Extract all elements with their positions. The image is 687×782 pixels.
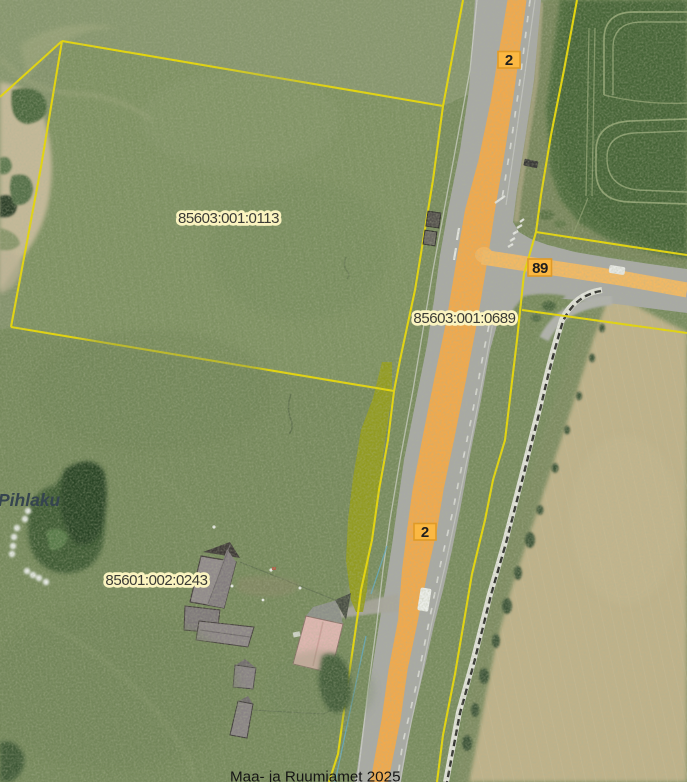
svg-text:85603:001:0689: 85603:001:0689 <box>413 310 515 327</box>
svg-text:2: 2 <box>505 52 513 69</box>
svg-text:89: 89 <box>532 260 548 277</box>
svg-text:85603:001:0113: 85603:001:0113 <box>178 210 279 227</box>
svg-text:2: 2 <box>421 524 429 541</box>
svg-text:Maa- ja Ruumiamet 2025: Maa- ja Ruumiamet 2025 <box>230 769 401 782</box>
svg-text:85601:002:0243: 85601:002:0243 <box>105 572 207 589</box>
svg-text:Pihlaku: Pihlaku <box>0 490 61 510</box>
